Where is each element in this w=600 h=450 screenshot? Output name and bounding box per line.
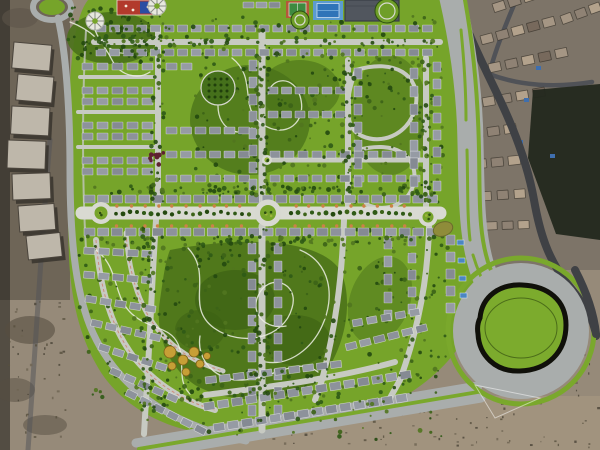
round-garden [201, 71, 235, 105]
map-canvas [0, 0, 600, 450]
desert-blotch [5, 316, 55, 344]
playground-equipment [125, 5, 128, 8]
masterplan-map [0, 0, 600, 450]
playground-equipment [132, 9, 135, 12]
